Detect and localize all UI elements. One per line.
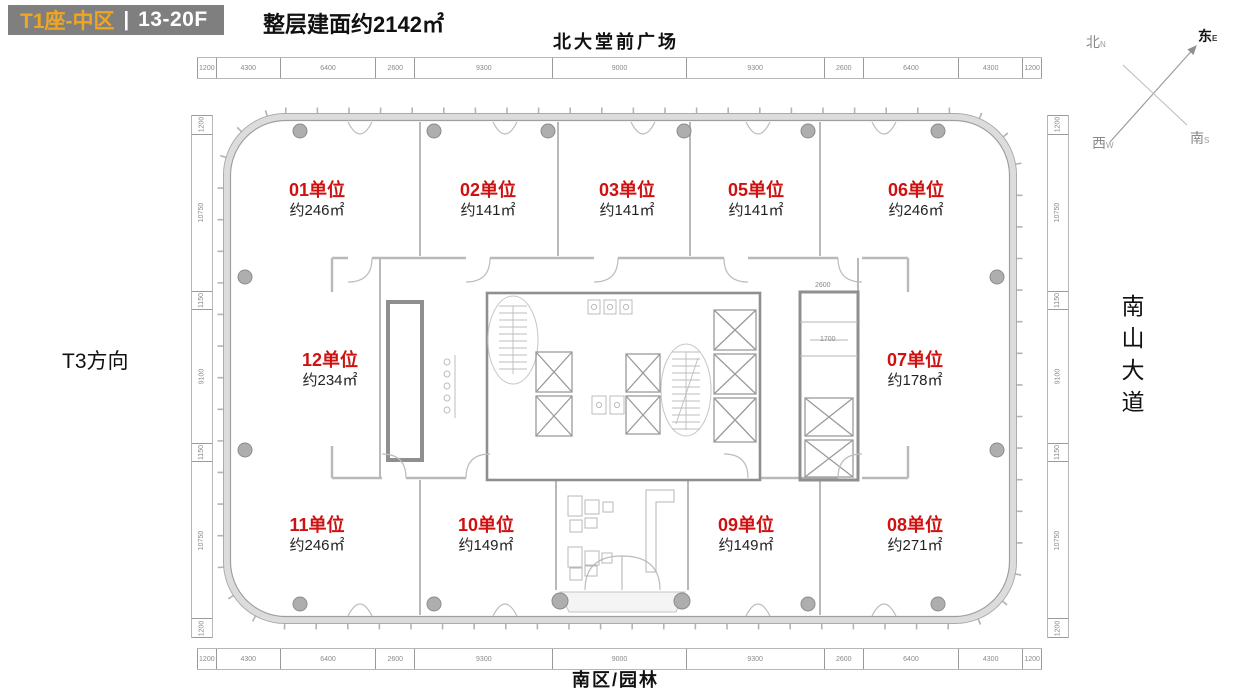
dimension-segment: 1200 (197, 649, 217, 669)
dimension-segment: 1200 (1023, 649, 1042, 669)
dimension-segment: 6400 (281, 649, 376, 669)
unit-10-label: 10单位约149㎡ (458, 514, 514, 556)
unit-05-label: 05单位约141㎡ (728, 179, 784, 221)
dimension-segment: 9300 (687, 58, 825, 78)
dimension-segment: 10750 (1048, 135, 1068, 293)
dimension-segment: 6400 (281, 58, 376, 78)
dimension-strip-left: 120010750115091001150107501200 (191, 115, 213, 638)
dimension-segment: 9300 (687, 649, 825, 669)
dimension-segment: 1200 (1023, 58, 1042, 78)
dimension-segment: 4300 (959, 58, 1023, 78)
dimension-segment: 2600 (825, 58, 864, 78)
unit-08-label: 08单位约271㎡ (887, 514, 943, 556)
dimension-segment: 9300 (415, 58, 553, 78)
dimension-segment: 2600 (376, 58, 415, 78)
unit-07-label: 07单位约178㎡ (887, 349, 943, 391)
dimension-segment: 9000 (553, 58, 686, 78)
core-dim-inner: 1700 (820, 336, 836, 343)
floorplan-page: T1座-中区 | 13-20F 整层建面约2142㎡ 北大堂前广场 南区/园林 … (0, 0, 1241, 695)
dimension-strip-right: 120010750115091001150107501200 (1047, 115, 1069, 638)
dimension-segment: 4300 (217, 58, 281, 78)
unit-06-label: 06单位约246㎡ (888, 179, 944, 221)
dimension-segment: 9000 (553, 649, 686, 669)
unit-12-label: 12单位约234㎡ (302, 349, 358, 391)
unit-09-label: 09单位约149㎡ (718, 514, 774, 556)
dimension-segment: 1150 (1048, 292, 1068, 310)
dimension-segment: 2600 (376, 649, 415, 669)
dimension-segment: 4300 (217, 649, 281, 669)
dimension-segment: 9100 (1048, 310, 1068, 444)
dimension-segment: 1150 (1048, 444, 1068, 462)
core-dim-width: 2600 (815, 282, 831, 289)
dimension-segment: 10750 (1048, 462, 1068, 620)
dimension-segment: 6400 (864, 58, 959, 78)
dimension-segment: 4300 (959, 649, 1023, 669)
dimension-strip-top: 1200430064002600930090009300260064004300… (197, 57, 1042, 79)
dimension-segment: 10750 (192, 135, 212, 293)
dimension-segment: 1200 (1048, 115, 1068, 135)
unit-03-label: 03单位约141㎡ (599, 179, 655, 221)
dimension-segment: 9300 (415, 649, 553, 669)
unit-01-label: 01单位约246㎡ (289, 179, 345, 221)
dimension-segment: 1150 (192, 292, 212, 310)
dimension-segment: 9100 (192, 310, 212, 444)
dimension-segment: 1200 (192, 619, 212, 638)
dimension-segment: 2600 (825, 649, 864, 669)
unit-02-label: 02单位约141㎡ (460, 179, 516, 221)
dimension-segment: 1150 (192, 444, 212, 462)
dimension-segment: 1200 (1048, 619, 1068, 638)
dimension-segment: 1200 (197, 58, 217, 78)
dimension-segment: 1200 (192, 115, 212, 135)
unit-11-label: 11单位约246㎡ (289, 514, 344, 556)
dimension-segment: 10750 (192, 462, 212, 620)
dimension-strip-bottom: 1200430064002600930090009300260064004300… (197, 648, 1042, 670)
dimension-segment: 6400 (864, 649, 959, 669)
